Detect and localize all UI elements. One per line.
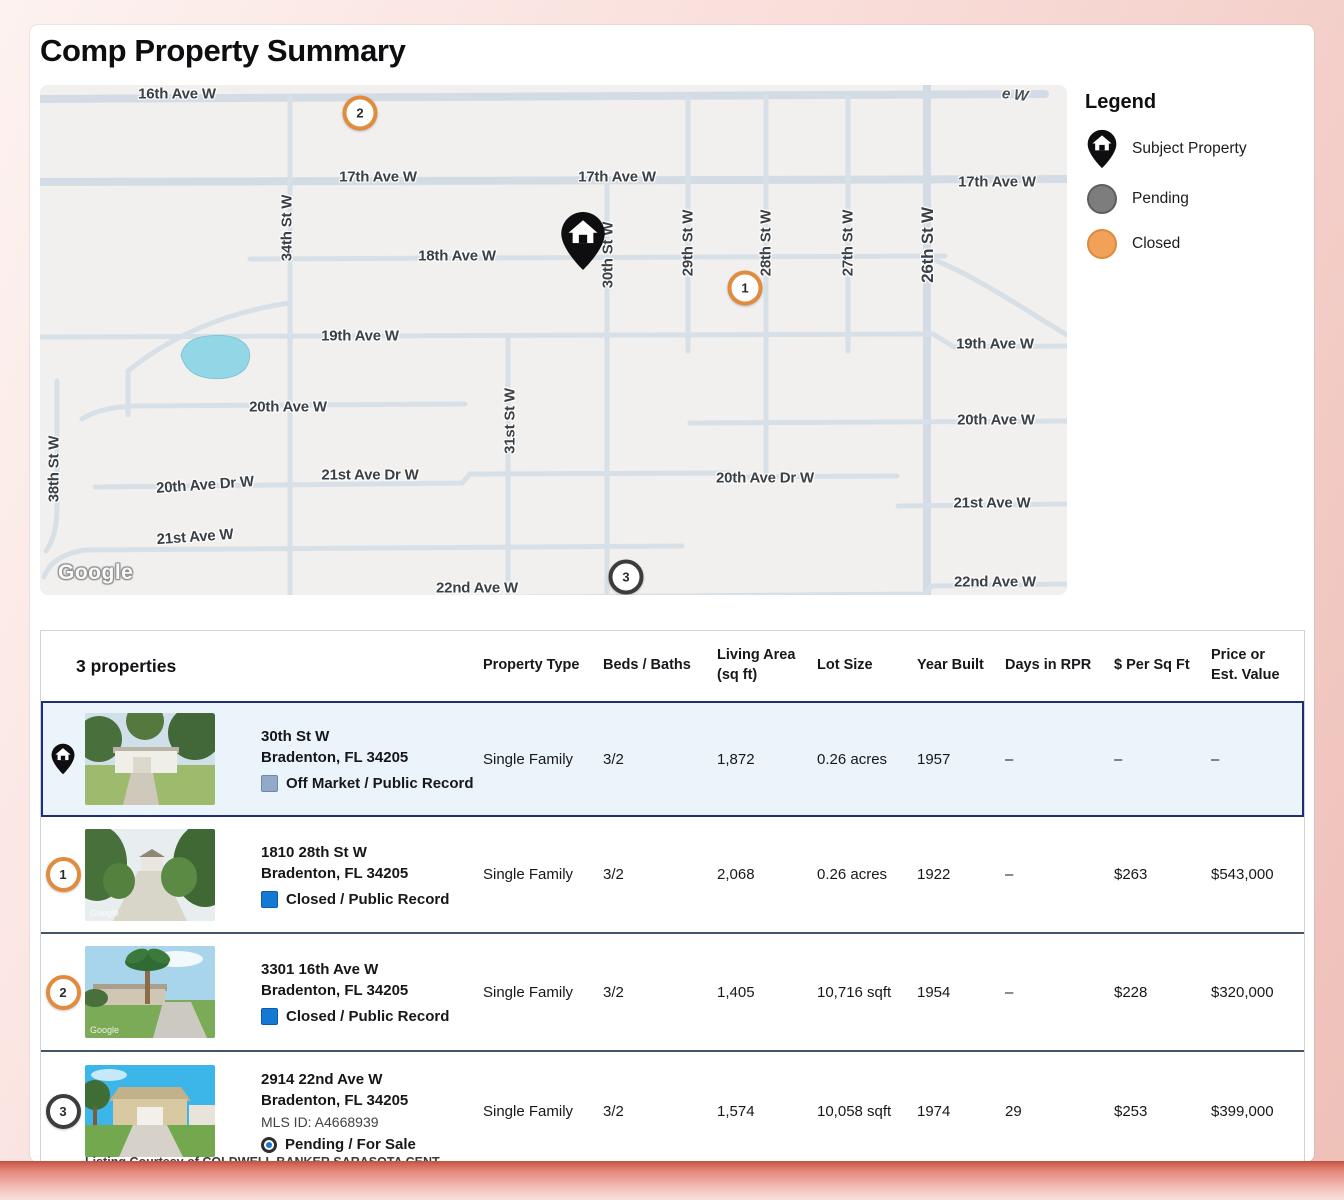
street-label: 16th Ave W [138, 86, 216, 103]
street-label: 28th St W [758, 210, 775, 277]
property-photo[interactable]: Google [85, 946, 231, 1038]
status-line: Pending / For Sale [261, 1136, 483, 1153]
pending-circle-icon [1085, 184, 1119, 214]
lot-size: 0.26 acres [817, 866, 917, 883]
comp-3-marker-icon: 3 [46, 1094, 81, 1129]
google-logo: Google [58, 561, 133, 585]
map-roads [40, 85, 1067, 595]
property-info: 3301 16th Ave W Bradenton, FL 34205 Clos… [231, 959, 483, 1025]
beds-baths: 3/2 [603, 866, 717, 883]
street-label: 27th St W [840, 210, 857, 277]
map-marker-3[interactable]: 3 [609, 560, 644, 595]
subject-property-pin[interactable] [560, 211, 606, 276]
year-built: 1922 [917, 866, 1005, 883]
street-label: 17th Ave W [958, 174, 1036, 191]
property-info: 2914 22nd Ave W Bradenton, FL 34205 MLS … [231, 1069, 483, 1153]
property-photo[interactable] [85, 713, 231, 805]
subject-pin-icon [560, 211, 606, 271]
table-row-comp-3[interactable]: 3 2914 22nd Ave W Bradenton, [41, 1050, 1304, 1162]
status-text: Off Market / Public Record [286, 775, 474, 792]
days-in-rpr: – [1005, 984, 1114, 1001]
price-per-sqft: $263 [1114, 866, 1211, 883]
map-marker-2[interactable]: 2 [343, 96, 378, 131]
legend-label: Closed [1132, 235, 1180, 253]
street-label: 20th Ave W [249, 399, 327, 416]
comp-2-marker-icon: 2 [46, 975, 81, 1010]
street-label: 20th Ave Dr W [716, 470, 814, 487]
legend-label: Subject Property [1132, 140, 1247, 158]
street-label: 19th Ave W [956, 336, 1034, 353]
legend-item-subject: Subject Property [1085, 129, 1311, 169]
svg-text:Google: Google [90, 908, 119, 918]
living-area: 1,574 [717, 1103, 817, 1120]
street-label: 38th St W [46, 436, 63, 503]
closed-status-icon [261, 891, 278, 908]
beds-baths: 3/2 [603, 1103, 717, 1120]
beds-baths: 3/2 [603, 984, 717, 1001]
comps-table: 3 properties Property Type Beds / Baths … [40, 630, 1305, 1162]
address-line2: Bradenton, FL 34205 [261, 863, 483, 884]
price: $399,000 [1211, 1103, 1304, 1120]
col-header-per-sqft: $ Per Sq Ft [1114, 656, 1211, 676]
street-label: 34th St W [279, 195, 296, 262]
legend-title: Legend [1085, 91, 1311, 114]
property-info: 1810 28th St W Bradenton, FL 34205 Close… [231, 842, 483, 908]
col-header-lot-size: Lot Size [817, 656, 917, 676]
address-line1: 2914 22nd Ave W [261, 1069, 483, 1090]
pending-status-icon [261, 1137, 277, 1153]
closed-status-icon [261, 1008, 278, 1025]
property-info: 30th St W Bradenton, FL 34205 Off Market… [231, 726, 483, 792]
status-text: Closed / Public Record [286, 1008, 449, 1025]
address-line2: Bradenton, FL 34205 [261, 747, 483, 768]
comps-map[interactable]: 16th Ave W e W 17th Ave W 17th Ave W 17t… [40, 85, 1067, 595]
pond [181, 335, 250, 378]
legend-label: Pending [1132, 190, 1189, 208]
col-header-days-in-rpr: Days in RPR [1005, 656, 1114, 676]
col-header-property-type: Property Type [483, 656, 603, 676]
page-title: Comp Property Summary [40, 33, 405, 69]
address-line1: 30th St W [261, 726, 483, 747]
map-marker-1[interactable]: 1 [728, 271, 763, 306]
street-label: 21st Ave W [954, 495, 1031, 512]
col-header-price: Price orEst. Value [1211, 646, 1304, 685]
beds-baths: 3/2 [603, 751, 717, 768]
street-label: 18th Ave W [418, 248, 496, 265]
price-per-sqft: $228 [1114, 984, 1211, 1001]
living-area: 1,872 [717, 751, 817, 768]
status-line: Closed / Public Record [261, 1008, 483, 1025]
price: – [1211, 751, 1304, 768]
legend-item-pending: Pending [1085, 184, 1311, 214]
lot-size: 10,716 sqft [817, 984, 917, 1001]
legend: Legend Subject Property Pending Closed [1085, 91, 1311, 259]
address-line1: 1810 28th St W [261, 842, 483, 863]
street-label: 21st Ave Dr W [321, 467, 418, 484]
street-label: 22nd Ave W [954, 574, 1036, 591]
table-row-comp-1[interactable]: 1 Google 1810 28th St W Bradenton, FL 34 [41, 817, 1304, 932]
page-frame-bottom [0, 1161, 1344, 1200]
street-label: 17th Ave W [339, 169, 417, 186]
subject-pin-icon [41, 743, 85, 775]
price: $543,000 [1211, 866, 1304, 883]
days-in-rpr: 29 [1005, 1103, 1114, 1120]
status-text: Pending / For Sale [285, 1136, 416, 1153]
street-label: 20th Ave W [957, 412, 1035, 429]
days-in-rpr: – [1005, 866, 1114, 883]
street-label: e W [1001, 85, 1029, 105]
table-row-subject[interactable]: 30th St W Bradenton, FL 34205 Off Market… [41, 701, 1304, 817]
col-header-year-built: Year Built [917, 656, 1005, 676]
subject-pin-icon [1085, 129, 1119, 169]
col-header-living-area: Living Area(sq ft) [717, 646, 817, 685]
property-type: Single Family [483, 984, 603, 1001]
property-photo[interactable]: Google [85, 829, 231, 921]
price: $320,000 [1211, 984, 1304, 1001]
properties-count: 3 properties [41, 656, 483, 677]
street-label: 26th St W [918, 207, 938, 283]
address-line2: Bradenton, FL 34205 [261, 1090, 483, 1111]
living-area: 2,068 [717, 866, 817, 883]
table-header-row: 3 properties Property Type Beds / Baths … [41, 631, 1304, 701]
living-area: 1,405 [717, 984, 817, 1001]
mls-id: MLS ID: A4668939 [261, 1112, 483, 1132]
property-type: Single Family [483, 1103, 603, 1120]
closed-circle-icon [1085, 229, 1119, 259]
street-label: 19th Ave W [321, 328, 399, 345]
street-label: 17th Ave W [578, 169, 656, 186]
summary-card: Comp Property Summary [30, 25, 1314, 1162]
price-per-sqft: $253 [1114, 1103, 1211, 1120]
street-label: 29th St W [680, 210, 697, 277]
price-per-sqft: – [1114, 751, 1211, 768]
comp-1-marker-icon: 1 [46, 857, 81, 892]
lot-size: 10,058 sqft [817, 1103, 917, 1120]
property-photo[interactable] [85, 1065, 231, 1157]
year-built: 1974 [917, 1103, 1005, 1120]
property-type: Single Family [483, 751, 603, 768]
property-type: Single Family [483, 866, 603, 883]
days-in-rpr: – [1005, 751, 1114, 768]
off-market-status-icon [261, 775, 278, 792]
table-row-comp-2[interactable]: 2 Google 3301 1 [41, 932, 1304, 1050]
lot-size: 0.26 acres [817, 751, 917, 768]
status-text: Closed / Public Record [286, 891, 449, 908]
year-built: 1954 [917, 984, 1005, 1001]
address-line1: 3301 16th Ave W [261, 959, 483, 980]
legend-item-closed: Closed [1085, 229, 1311, 259]
col-header-beds-baths: Beds / Baths [603, 656, 717, 676]
status-line: Closed / Public Record [261, 891, 483, 908]
street-label: 31st St W [502, 388, 519, 454]
status-line: Off Market / Public Record [261, 775, 483, 792]
year-built: 1957 [917, 751, 1005, 768]
svg-text:Google: Google [90, 1025, 119, 1035]
street-label: 22nd Ave W [436, 580, 518, 596]
address-line2: Bradenton, FL 34205 [261, 980, 483, 1001]
